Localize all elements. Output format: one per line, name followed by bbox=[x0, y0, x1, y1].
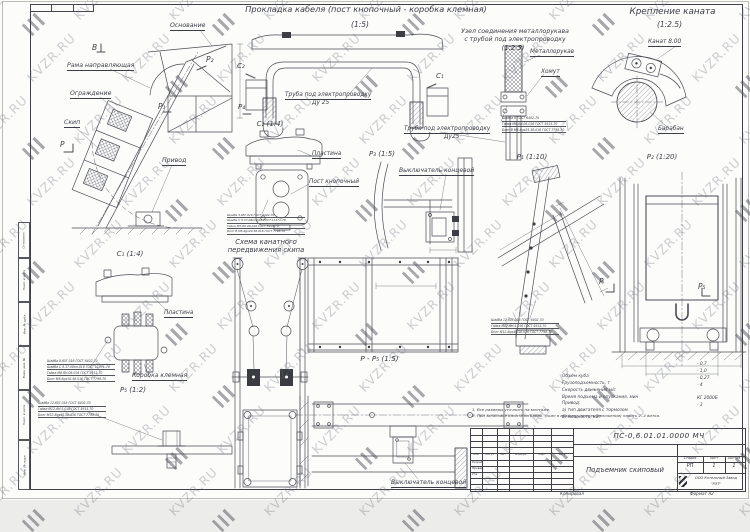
col-header: Подп. bbox=[533, 454, 551, 457]
stage-label: Стадия bbox=[677, 457, 703, 460]
view-label-c1: С₁ (1:4) bbox=[98, 251, 162, 259]
part-spec-line: Болт М8-6gх10.58.016 ГОСТ 7798-70 bbox=[47, 378, 115, 383]
doc-number: ПС-0,6.01.01.0000 МЧ bbox=[573, 432, 745, 439]
parts-list-c2: Шайба 5.65Г.016 ГОСТ 6402-70 Шайба С 5.3… bbox=[227, 214, 305, 236]
view-label-p2: Р₂ (1:20) bbox=[630, 154, 694, 162]
section-mark-p: Р bbox=[60, 141, 65, 149]
part-spec-line: Гайка М8-6Н.06.016 ГОСТ 5915-70 bbox=[47, 372, 115, 377]
metal-hose-label: Металлорукав bbox=[530, 49, 574, 57]
drum-label: Барабан bbox=[658, 126, 684, 134]
copied-by-label: Копировал bbox=[560, 492, 584, 497]
sheet-label: Лист bbox=[703, 457, 725, 460]
skip-label: Скип bbox=[64, 120, 80, 128]
company-name-line2: "РЭТ" bbox=[688, 483, 744, 487]
parts-list-c1: Шайба 8.65Г.016 ГОСТ 6402-70 Шайба С 8.3… bbox=[47, 360, 115, 384]
view-label-c2: С₂ (1:4) bbox=[240, 121, 300, 129]
limit-switch-label-1: Выключатель концевой bbox=[399, 168, 474, 176]
rope-label: Канат 8.00 bbox=[648, 39, 681, 47]
spec-value: - 4 bbox=[697, 383, 703, 388]
limit-switch-label-2: Выключатель концевой bbox=[391, 480, 466, 488]
col-header: № докум. bbox=[509, 454, 533, 457]
divider bbox=[471, 447, 573, 448]
conduit-du25-2: Ду25 bbox=[444, 134, 459, 140]
part-spec-line: Гайка М12-6Н.5.016 ГОСТ 5915-70 bbox=[38, 408, 106, 413]
sheet-value: 1 bbox=[703, 464, 725, 469]
part-spec-line: Шайба 12.65Г.016 ГОСТ 6402-70 bbox=[38, 402, 106, 407]
col-header: Изм. bbox=[471, 454, 482, 457]
sheets-label: Листов bbox=[725, 457, 743, 460]
title-rope-scale: (1:2.5) bbox=[632, 21, 707, 29]
title-hose-line2: с трубой под электропроводку bbox=[445, 37, 585, 44]
view-label-p3: Р₃ (1:5) bbox=[352, 151, 412, 159]
watermark-logo-icon bbox=[212, 507, 237, 532]
col-header: Лист bbox=[497, 454, 509, 457]
note-line: 2. При запасовке каната на бараб. (скип … bbox=[472, 413, 660, 419]
scheme-title-line2: передвижения скипа bbox=[222, 247, 310, 254]
view-pp5-frame bbox=[297, 247, 458, 352]
push-button-label: Пост кнопочный bbox=[309, 179, 359, 187]
drawing-sheet: { "watermark": {"text": "KVZR.RU"}, "she… bbox=[0, 0, 750, 500]
company-logo bbox=[679, 476, 687, 487]
title-hose-line1: Узел соединения металлорукава bbox=[445, 29, 585, 36]
view-label-pp5: Р - Р₅ (1:5) bbox=[342, 355, 417, 363]
spec-row: Привод: bbox=[562, 389, 750, 396]
parts-list-p5: Шайба 12.65Г.016 ГОСТ 6402-70 Гайка М12-… bbox=[38, 402, 106, 420]
divider bbox=[471, 435, 573, 436]
section-mark-p1: Р₁ bbox=[158, 103, 166, 111]
part-spec-line: Болт М12-6gх45.58.016 ГОСТ 7798-70 bbox=[491, 331, 559, 336]
divider bbox=[471, 466, 573, 467]
technical-specs: Объем куба- 0,7 Грузоподъемность, т- 1,0… bbox=[562, 362, 750, 410]
guide-frame-label: Рама направляющая bbox=[67, 63, 134, 71]
spec-row: Скорость движения м/с- 0,27 bbox=[562, 376, 750, 383]
part-spec-line: Шайба 12.65Г.016 ГОСТ 6402-70 bbox=[491, 319, 559, 324]
plate-label-2: Пластина bbox=[164, 310, 193, 318]
clamp-label: Хомут bbox=[541, 69, 560, 77]
view-label-p5: Р₅ (1:2) bbox=[120, 387, 146, 395]
title-cable-routing: Прокладка кабеля (пост кнопочный - короб… bbox=[238, 5, 494, 14]
drive-label: Привод bbox=[162, 158, 186, 166]
stage-value: РП bbox=[677, 464, 703, 469]
view-rope-fastening bbox=[592, 46, 686, 131]
drawing-linework bbox=[0, 0, 750, 500]
section-mark-c2: С₂ bbox=[237, 63, 245, 71]
title-cable-scale: (1:5) bbox=[330, 21, 390, 29]
format-label: Формат А2 bbox=[690, 492, 714, 497]
part-spec-line: Шайба 6 ГОСТ 6402-70 bbox=[502, 117, 566, 122]
part-spec-line: Болт В М6-6gх25.58.016 ГОСТ 7798-70 bbox=[502, 129, 566, 134]
divider bbox=[471, 460, 573, 461]
view-rope-scheme bbox=[232, 258, 308, 488]
role-label: Провер. bbox=[472, 467, 484, 470]
company-name-line1: ООО Котельный Завод bbox=[688, 477, 744, 481]
divider bbox=[471, 484, 573, 485]
title-block: ПС-0,6.01.01.0000 МЧ Подъемник скиповый … bbox=[470, 428, 746, 492]
spec-value: КГ 2000Б bbox=[697, 396, 718, 401]
part-spec-line: Гайка М12-6Н.5.016 ГОСТ 5915-70 bbox=[491, 325, 559, 330]
watermark-logo-icon bbox=[22, 507, 47, 532]
part-spec-line: Гайка М6-6Н.06.016 ГОСТ 5915-70 bbox=[502, 123, 566, 128]
role-label: Утв. bbox=[472, 473, 478, 476]
divider bbox=[677, 473, 745, 474]
view-p2-front bbox=[606, 172, 746, 376]
conduit-label-2: Труба под электропроводку bbox=[404, 126, 490, 134]
view-label-p1: Р₁ (1:10) bbox=[500, 154, 564, 162]
divider bbox=[471, 472, 573, 473]
conduit-du25-1: Ду 25 bbox=[312, 100, 329, 106]
spec-value: - 0,7 bbox=[697, 362, 707, 367]
terminal-box-label: Коробка клемная bbox=[132, 373, 187, 381]
sheets-value: 1 bbox=[725, 464, 743, 469]
section-mark-c1: С₁ bbox=[436, 73, 444, 81]
spec-value: - 3 bbox=[697, 403, 703, 408]
divider bbox=[471, 441, 573, 442]
part-spec-line: Болт М12-6gх45.58.016 ГОСТ 7798-70 bbox=[38, 414, 106, 419]
spec-row: Грузоподъемность, т- 1,0 bbox=[562, 369, 750, 376]
general-notes: 1. Все размеры уточнить на монтаже. 2. П… bbox=[472, 407, 660, 418]
divider bbox=[573, 444, 745, 445]
spec-row: Объем куба- 0,7 bbox=[562, 362, 750, 369]
section-mark-p-front: Р bbox=[599, 278, 604, 286]
spec-value: - 1,0 bbox=[697, 369, 707, 374]
drawing-title: Подъемник скиповый bbox=[573, 467, 677, 474]
view-hose-joint bbox=[440, 46, 544, 160]
spec-row: Время подъема и опускания, мин- 4 bbox=[562, 383, 750, 390]
plate-label-1: Пластина bbox=[312, 151, 341, 159]
role-label: Разраб. bbox=[472, 461, 483, 464]
title-rope-fastening: Крепление каната bbox=[600, 8, 745, 18]
part-spec-line: Шайба 8.65Г.016 ГОСТ 6402-70 bbox=[47, 360, 115, 365]
col-header: Дата bbox=[551, 454, 573, 457]
spec-row: а) тип двигателя с тормозомКГ 2000Б bbox=[562, 396, 750, 403]
watermark-logo-icon bbox=[592, 507, 617, 532]
watermark-logo-icon bbox=[402, 507, 427, 532]
section-mark-p2: Р₂ bbox=[206, 56, 214, 64]
section-mark-b: В bbox=[92, 44, 97, 52]
guard-label: Ограждение bbox=[70, 91, 111, 99]
conduit-label-1: Труба под электропроводку bbox=[285, 92, 371, 100]
base-label: Основание bbox=[170, 23, 205, 31]
part-spec-line: Болт В М5-6gх20.58.016 ГОСТ 7798-70 bbox=[227, 230, 305, 234]
part-spec-line: Шайба С 8.37.08кп.016 ГОСТ 11371-78 bbox=[47, 366, 115, 371]
col-header: Кол.уч bbox=[482, 454, 497, 457]
section-mark-p5-front: Р₅ bbox=[698, 283, 706, 291]
divider bbox=[471, 478, 573, 479]
section-mark-p4: Р₄ bbox=[238, 104, 245, 112]
parts-list-p1: Шайба 12.65Г.016 ГОСТ 6402-70 Гайка М12-… bbox=[491, 319, 559, 337]
view-p5-detail bbox=[88, 412, 232, 468]
spec-value: - 0,27 bbox=[697, 376, 709, 381]
parts-list-hose: Шайба 6 ГОСТ 6402-70 Гайка М6-6Н.06.016 … bbox=[502, 117, 566, 135]
